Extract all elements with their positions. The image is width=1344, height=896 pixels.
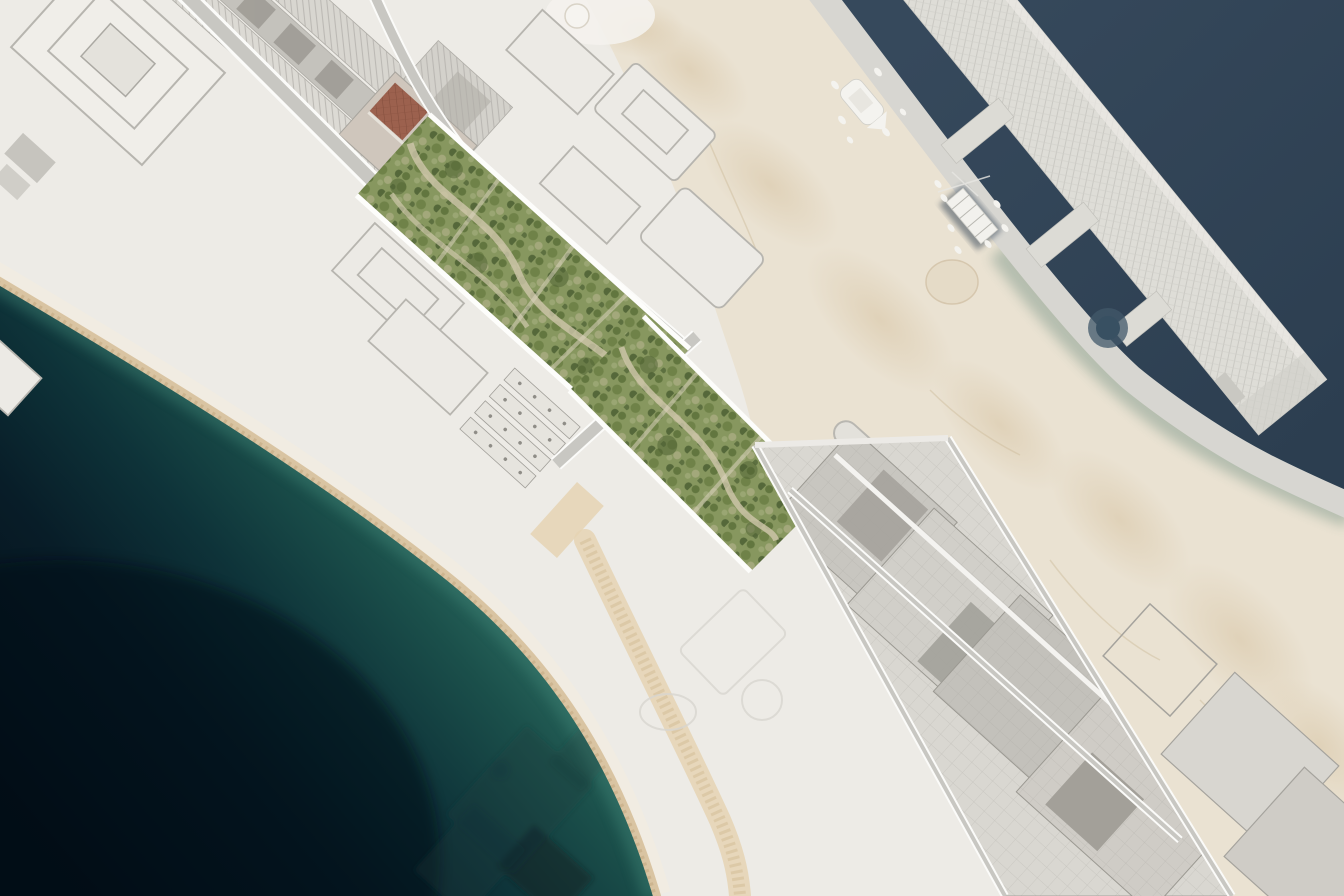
aerial-scene bbox=[0, 0, 1344, 896]
submerged-tank-basin bbox=[1088, 308, 1128, 348]
sand-pond bbox=[565, 4, 589, 28]
satellite-image bbox=[0, 0, 1344, 896]
submerged-tank bbox=[490, 760, 510, 780]
sand-circle-feature bbox=[926, 260, 978, 304]
submerged-circular-tank-inner bbox=[1096, 316, 1120, 340]
